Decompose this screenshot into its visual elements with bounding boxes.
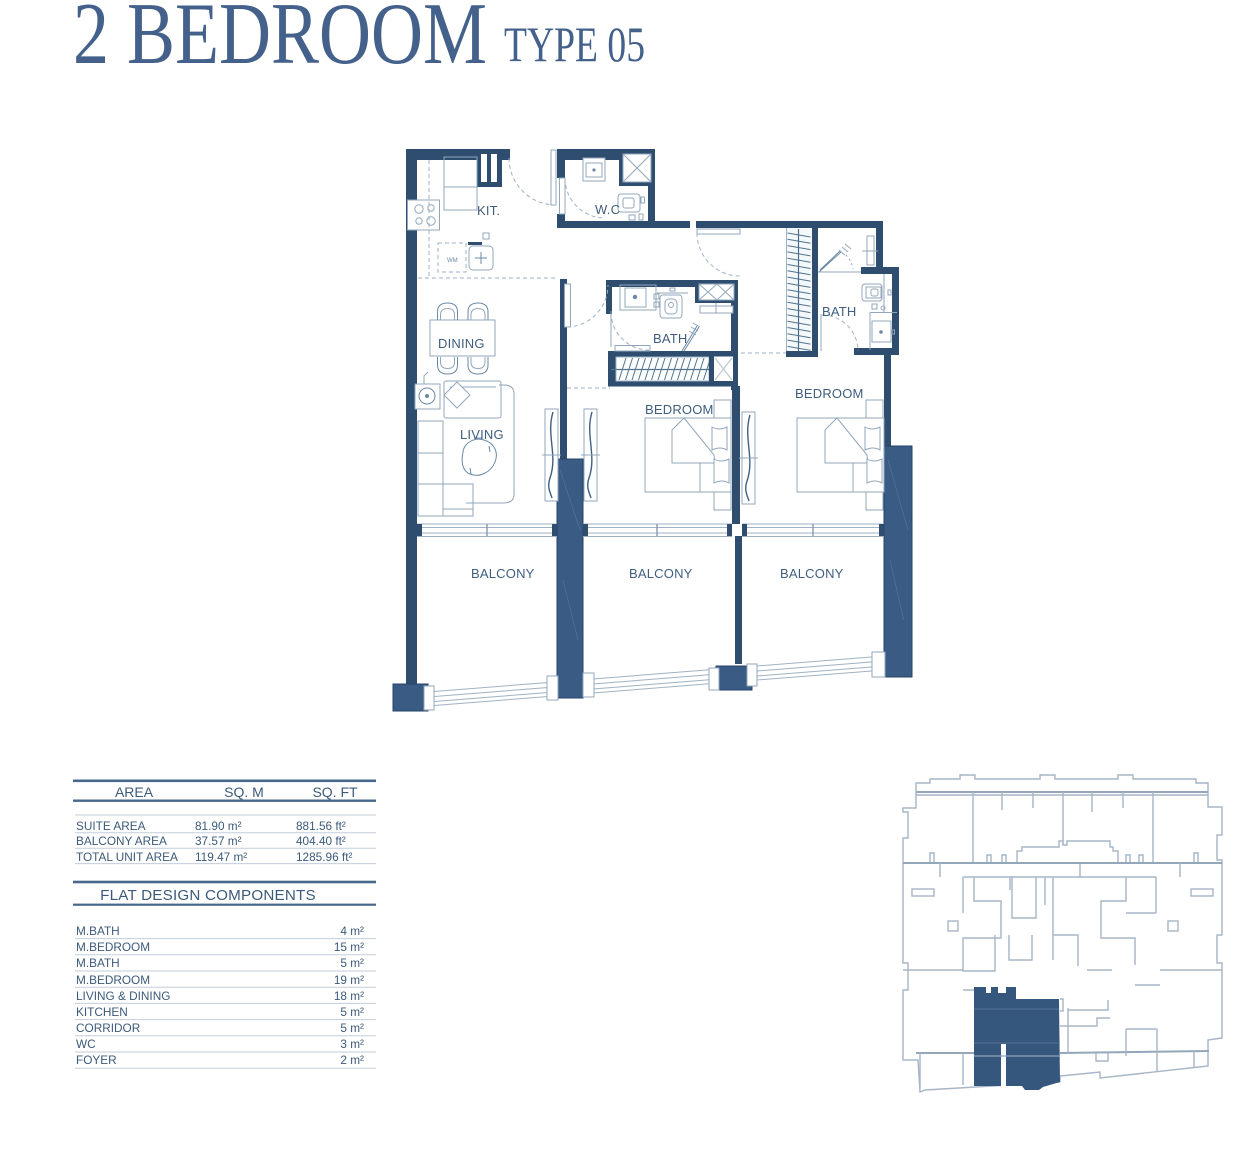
svg-text:M.BEDROOM: M.BEDROOM [76,973,150,987]
svg-text:4 m²: 4 m² [340,924,364,938]
svg-text:WM: WM [447,258,458,264]
svg-text:DINING: DINING [438,336,485,351]
svg-text:881.56 ft²: 881.56 ft² [296,819,346,833]
svg-text:SQ. M: SQ. M [224,784,264,800]
svg-text:KITCHEN: KITCHEN [76,1005,128,1019]
svg-text:LIVING & DINING: LIVING & DINING [76,989,170,1003]
svg-text:BEDROOM: BEDROOM [795,386,864,401]
svg-text:1285.96 ft²: 1285.96 ft² [296,850,352,864]
svg-text:3 m²: 3 m² [340,1037,364,1051]
svg-text:19 m²: 19 m² [334,973,364,987]
svg-text:BALCONY: BALCONY [471,566,535,581]
svg-text:CORRIDOR: CORRIDOR [76,1021,140,1035]
svg-text:404.40 ft²: 404.40 ft² [296,834,346,848]
svg-text:TOTAL UNIT AREA: TOTAL UNIT AREA [76,850,178,864]
svg-text:BATH: BATH [653,331,688,346]
svg-text:BALCONY: BALCONY [780,566,844,581]
svg-text:W.C: W.C [595,202,620,217]
svg-text:M.BATH: M.BATH [76,924,120,938]
svg-text:2 BEDROOM: 2 BEDROOM [73,0,487,83]
svg-text:5 m²: 5 m² [340,956,364,970]
svg-text:37.57 m²: 37.57 m² [195,834,242,848]
svg-text:119.47 m²: 119.47 m² [195,850,247,864]
svg-text:TYPE 05: TYPE 05 [504,16,645,72]
svg-text:FOYER: FOYER [76,1053,117,1067]
svg-text:WC: WC [76,1037,96,1051]
svg-text:FLAT DESIGN COMPONENTS: FLAT DESIGN COMPONENTS [100,887,316,904]
svg-text:SUITE AREA: SUITE AREA [76,819,146,833]
svg-text:KIT.: KIT. [477,203,500,218]
svg-text:5 m²: 5 m² [340,1005,364,1019]
svg-text:5 m²: 5 m² [340,1021,364,1035]
svg-text:2 m²: 2 m² [340,1053,364,1067]
svg-text:M.BEDROOM: M.BEDROOM [76,940,150,954]
svg-text:LIVING: LIVING [460,427,504,442]
svg-text:BEDROOM: BEDROOM [645,402,714,417]
svg-text:BALCONY AREA: BALCONY AREA [76,834,167,848]
svg-text:15 m²: 15 m² [334,940,364,954]
svg-text:AREA: AREA [115,784,154,800]
svg-text:M.BATH: M.BATH [76,956,120,970]
svg-text:18 m²: 18 m² [334,989,364,1003]
svg-text:BALCONY: BALCONY [629,566,693,581]
svg-text:BATH: BATH [822,304,857,319]
svg-text:81.90 m²: 81.90 m² [195,819,242,833]
svg-text:SQ. FT: SQ. FT [312,784,358,800]
